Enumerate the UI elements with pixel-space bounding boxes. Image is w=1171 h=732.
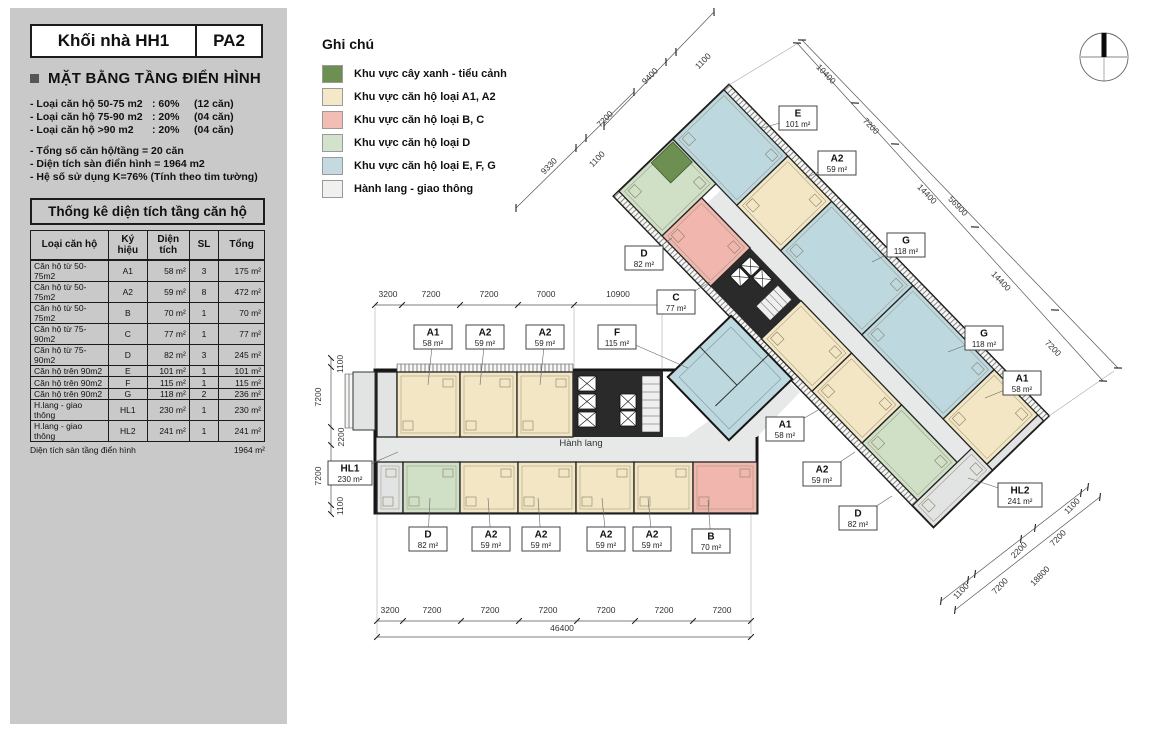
unit-area: 59 m² <box>481 541 502 550</box>
dim-tick <box>1087 483 1088 491</box>
unit-code: HL2 <box>1011 486 1030 497</box>
dimension-value: 7200 <box>713 605 732 615</box>
dim-tick <box>1100 493 1101 501</box>
unit-area: 58 m² <box>423 339 444 348</box>
unit-area: 118 m² <box>972 340 997 349</box>
unit-code: A2 <box>831 154 844 165</box>
dim-tick <box>967 576 968 584</box>
unit-block <box>693 462 757 513</box>
unit-code: C <box>672 293 679 304</box>
balcony-hatch <box>345 374 353 428</box>
dimension-value: 3200 <box>379 289 398 299</box>
dimension-value: 7200 <box>655 605 674 615</box>
unit-block <box>518 462 576 513</box>
unit-code: G <box>902 236 910 247</box>
unit-code: A2 <box>646 530 659 541</box>
dimension-value: 7200 <box>539 605 558 615</box>
dimension-value: 1100 <box>335 497 345 516</box>
dim-tick <box>1080 489 1081 497</box>
unit-area: 58 m² <box>775 431 796 440</box>
unit-area: 58 m² <box>1012 385 1033 394</box>
corridor-label: Hành lang <box>559 438 602 449</box>
dimension-value: 14400 <box>915 182 939 206</box>
unit-code: E <box>795 109 802 120</box>
unit-code: D <box>854 509 861 520</box>
unit-area: 101 m² <box>786 120 811 129</box>
dimension-value: 2200 <box>1009 539 1030 560</box>
unit-area: 59 m² <box>827 165 848 174</box>
unit-area: 82 m² <box>848 520 869 529</box>
dimension-value: 14400 <box>989 269 1013 293</box>
unit-block <box>517 372 573 437</box>
unit-code: F <box>614 328 620 339</box>
unit-area: 77 m² <box>666 304 687 313</box>
dimension-value: 7200 <box>595 108 616 129</box>
dimension-value: 7200 <box>422 289 441 299</box>
unit-area: 82 m² <box>634 260 655 269</box>
unit-code: D <box>640 249 647 260</box>
unit-code: A2 <box>535 530 548 541</box>
dim-line <box>955 497 1100 610</box>
dim-tick <box>940 597 941 605</box>
dimension-value: 1100 <box>693 51 713 71</box>
dimension-value: 7200 <box>423 605 442 615</box>
dimension-value: 7200 <box>481 605 500 615</box>
dimension-value: 3200 <box>381 605 400 615</box>
unit-block <box>634 462 693 513</box>
unit-block <box>377 372 397 437</box>
unit-area: 59 m² <box>596 541 617 550</box>
dimension-value: 7200 <box>1048 527 1069 548</box>
dimension-value: 1100 <box>1062 496 1082 516</box>
unit-code: G <box>980 329 988 340</box>
unit-code: A1 <box>779 420 792 431</box>
dimension-value: 9330 <box>539 155 560 176</box>
north-compass-icon <box>1080 33 1128 81</box>
unit-area: 59 m² <box>812 476 833 485</box>
stair <box>642 376 660 432</box>
projection-line <box>1049 371 1114 416</box>
unit-code: A2 <box>539 328 552 339</box>
unit-code: HL1 <box>341 464 360 475</box>
unit-area: 59 m² <box>535 339 556 348</box>
dimension-value: 7200 <box>990 575 1011 596</box>
dimension-value: 10900 <box>606 289 630 299</box>
unit-area: 115 m² <box>605 339 630 348</box>
unit-block <box>403 462 460 513</box>
dimension-value: 1100 <box>335 355 345 374</box>
unit-area: 82 m² <box>418 541 439 550</box>
dimension-value: 18800 <box>1028 564 1052 588</box>
balcony-hatch <box>397 364 573 372</box>
dimension-value: 46400 <box>550 623 574 633</box>
projection-line <box>729 42 800 85</box>
unit-block <box>460 462 518 513</box>
unit-area: 230 m² <box>338 475 363 484</box>
dimension-value: 7000 <box>537 289 556 299</box>
unit-code: A1 <box>1016 374 1029 385</box>
unit-code: A2 <box>600 530 613 541</box>
dim-line <box>516 92 634 208</box>
dim-tick <box>1034 524 1035 532</box>
unit-code: D <box>424 530 431 541</box>
unit-area: 59 m² <box>531 541 552 550</box>
dim-tick <box>955 606 956 614</box>
unit-area: 70 m² <box>701 543 722 552</box>
floor-plan-sheet: Khối nhà HH1 PA2 MẶT BẰNG TẦNG ĐIỂN HÌNH… <box>0 0 1171 732</box>
dimension-value: 7200 <box>1043 338 1064 359</box>
unit-code: A2 <box>485 530 498 541</box>
dimension-value: 56900 <box>946 194 970 218</box>
dimension-value: 9400 <box>640 65 661 86</box>
dimension-value: 7200 <box>313 387 323 406</box>
dimension-value: 7200 <box>597 605 616 615</box>
unit-area: 241 m² <box>1008 497 1033 506</box>
unit-code: B <box>707 532 714 543</box>
floor-plan-drawing: Hành lang 320072007200700010900320072007… <box>0 0 1171 732</box>
unit-area: 59 m² <box>642 541 663 550</box>
unit-code: A2 <box>816 465 829 476</box>
dimension-value: 2200 <box>336 427 346 446</box>
dimension-value: 7200 <box>480 289 499 299</box>
unit-code: A1 <box>427 328 440 339</box>
dim-tick <box>974 570 975 578</box>
unit-area: 59 m² <box>475 339 496 348</box>
unit-block <box>576 462 634 513</box>
unit-code: A2 <box>479 328 492 339</box>
entry-stair <box>353 372 375 430</box>
unit-block <box>460 372 517 437</box>
unit-area: 118 m² <box>894 247 919 256</box>
dimension-value: 1100 <box>587 149 607 169</box>
dimension-value: 7200 <box>313 466 323 485</box>
